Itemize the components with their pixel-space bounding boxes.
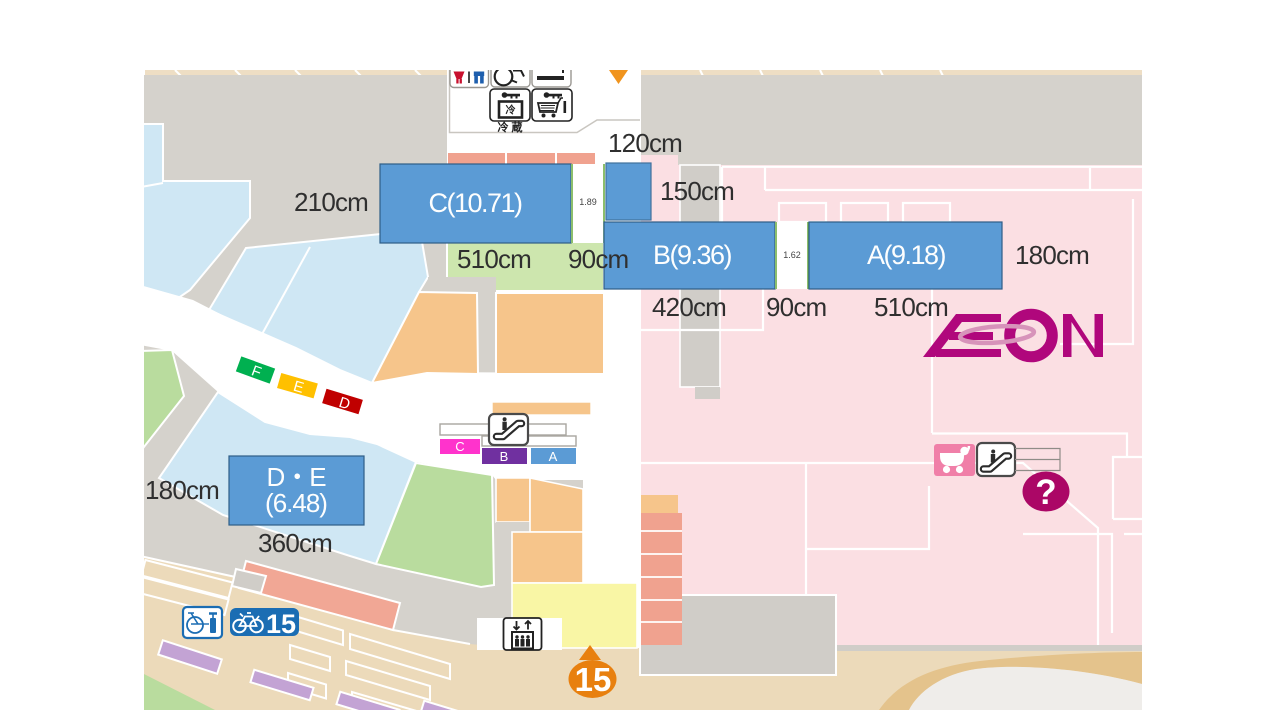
- svg-text:B(9.36): B(9.36): [653, 240, 732, 270]
- svg-text:1.62: 1.62: [783, 250, 801, 260]
- svg-text:A: A: [549, 449, 558, 464]
- svg-text:1.89: 1.89: [579, 197, 597, 207]
- svg-text:210cm: 210cm: [294, 187, 368, 217]
- svg-text:冷 蔵: 冷 蔵: [497, 120, 522, 134]
- svg-text:15: 15: [575, 661, 612, 698]
- svg-text:120cm: 120cm: [608, 128, 682, 158]
- svg-text:180cm: 180cm: [1015, 240, 1089, 270]
- svg-text:C: C: [455, 439, 464, 454]
- svg-text:冷: 冷: [506, 104, 516, 117]
- svg-text:90cm: 90cm: [568, 244, 628, 274]
- svg-text:15: 15: [266, 609, 296, 639]
- svg-text:180cm: 180cm: [145, 475, 219, 505]
- svg-text:B: B: [500, 449, 509, 464]
- svg-text:510cm: 510cm: [457, 244, 531, 274]
- svg-text:(6.48): (6.48): [265, 488, 327, 518]
- svg-text:?: ?: [1035, 473, 1056, 512]
- svg-text:510cm: 510cm: [874, 292, 948, 322]
- svg-text:C(10.71): C(10.71): [428, 188, 522, 218]
- svg-text:A(9.18): A(9.18): [867, 240, 946, 270]
- svg-text:360cm: 360cm: [258, 528, 332, 558]
- svg-text:90cm: 90cm: [766, 292, 826, 322]
- svg-text:420cm: 420cm: [652, 292, 726, 322]
- svg-text:150cm: 150cm: [660, 176, 734, 206]
